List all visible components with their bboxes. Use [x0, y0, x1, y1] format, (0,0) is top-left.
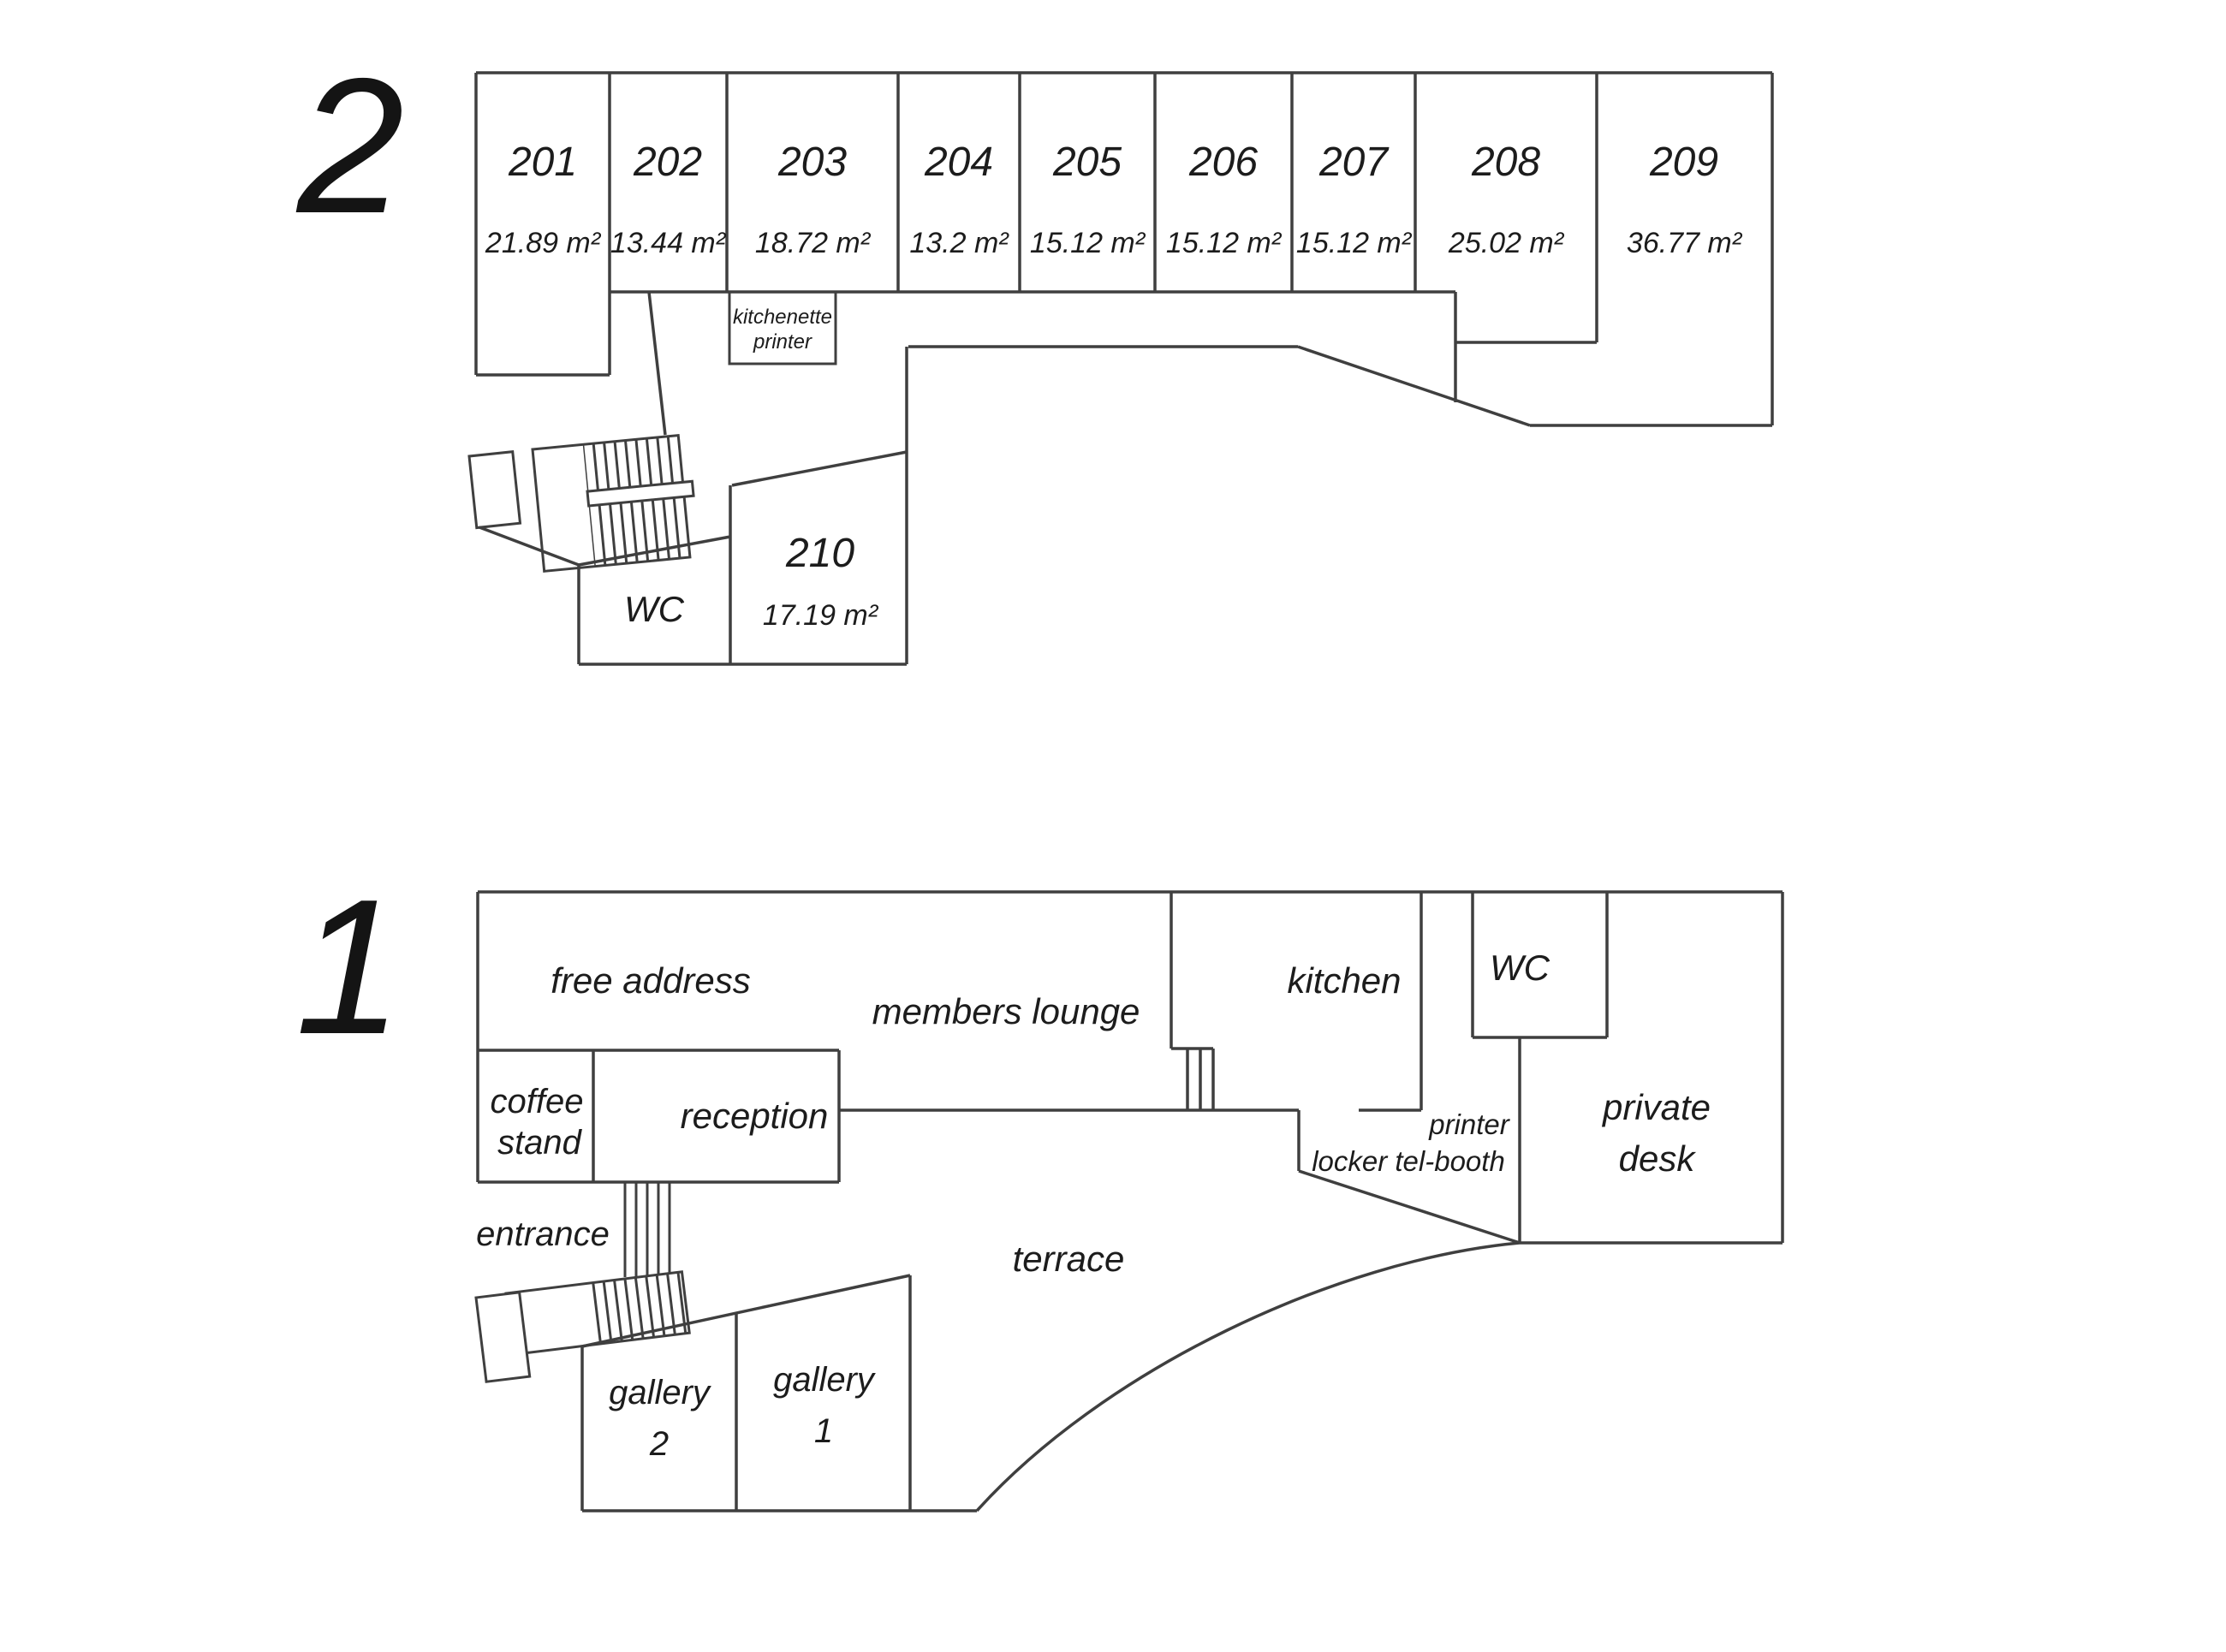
kitchenette-label: kitchenette	[733, 306, 832, 329]
floor1-plan: 1 free address members lounge coffee sta…	[295, 859, 1783, 1511]
room-206-area: 15.12 m²	[1166, 227, 1283, 259]
floor2-numeral: 2	[295, 38, 404, 253]
room-208-number: 208	[1471, 140, 1540, 185]
room-203-area: 18.72 m²	[755, 227, 872, 259]
room-205-area: 15.12 m²	[1030, 227, 1146, 259]
floor-plan-page: 2 201 21.89 m² 202 13.44 m² 20	[0, 0, 2226, 1652]
room-210-area: 17.19 m²	[763, 599, 879, 632]
room-205-number: 205	[1052, 140, 1122, 185]
room-206-number: 206	[1188, 140, 1258, 185]
free-address-label: free address	[551, 960, 750, 1001]
coffee-stand-label-line2: stand	[497, 1124, 583, 1162]
stairs-floor2	[469, 435, 699, 572]
room-204-area: 13.2 m²	[909, 227, 1009, 259]
room-209-area: 36.77 m²	[1627, 227, 1743, 259]
gallery1-label-line1: gallery	[773, 1361, 877, 1399]
terrace-curve	[977, 1243, 1520, 1511]
stair-side-flight-floor2	[469, 452, 521, 528]
floor1-numeral: 1	[295, 859, 402, 1074]
room-207-number: 207	[1318, 140, 1390, 185]
gallery2-label-line1: gallery	[609, 1374, 712, 1411]
room-210-number: 210	[785, 531, 854, 576]
private-desk-label-line1: private	[1601, 1087, 1711, 1127]
room-207-area: 15.12 m²	[1296, 227, 1413, 259]
entrance-stair-treads-straight	[625, 1182, 670, 1277]
stair-flight-down-floor2	[589, 497, 689, 565]
reception-label: reception	[681, 1096, 829, 1136]
gallery2-label-line2: 2	[649, 1425, 669, 1463]
wc-label-floor2: WC	[624, 589, 685, 629]
room-202-area: 13.44 m²	[610, 227, 727, 259]
room-209-number: 209	[1649, 140, 1718, 185]
room-203-number: 203	[777, 140, 847, 185]
room-201-number: 201	[508, 140, 577, 185]
floor2-room-labels: 201 21.89 m² 202 13.44 m² 203 18.72 m² 2…	[485, 140, 1743, 259]
members-lounge-label: members lounge	[872, 991, 1140, 1031]
printer-label: printer	[1428, 1108, 1511, 1140]
private-desk-label-line2: desk	[1619, 1138, 1697, 1179]
room-208-area: 25.02 m²	[1448, 227, 1565, 259]
entrance-label: entrance	[476, 1215, 610, 1253]
room-201-area: 21.89 m²	[485, 227, 602, 259]
locker-telbooth-label: locker tel-booth	[1312, 1145, 1505, 1177]
coffee-stand-label-line1: coffee	[491, 1083, 584, 1120]
terrace-label: terrace	[1013, 1239, 1125, 1279]
room-202-number: 202	[633, 140, 702, 185]
kitchenette-printer-label: printer	[753, 330, 812, 354]
floor1-walls	[478, 892, 1783, 1243]
floor2-plan: 2 201 21.89 m² 202 13.44 m² 20	[295, 38, 1772, 664]
entrance-stair-side-flight	[476, 1292, 530, 1382]
floor-plan-canvas: 2 201 21.89 m² 202 13.44 m² 20	[0, 0, 2226, 1652]
gallery1-label-line2: 1	[814, 1412, 833, 1450]
kitchen-label: kitchen	[1287, 960, 1401, 1001]
wc-label-floor1: WC	[1490, 948, 1550, 988]
room-204-number: 204	[924, 140, 993, 185]
